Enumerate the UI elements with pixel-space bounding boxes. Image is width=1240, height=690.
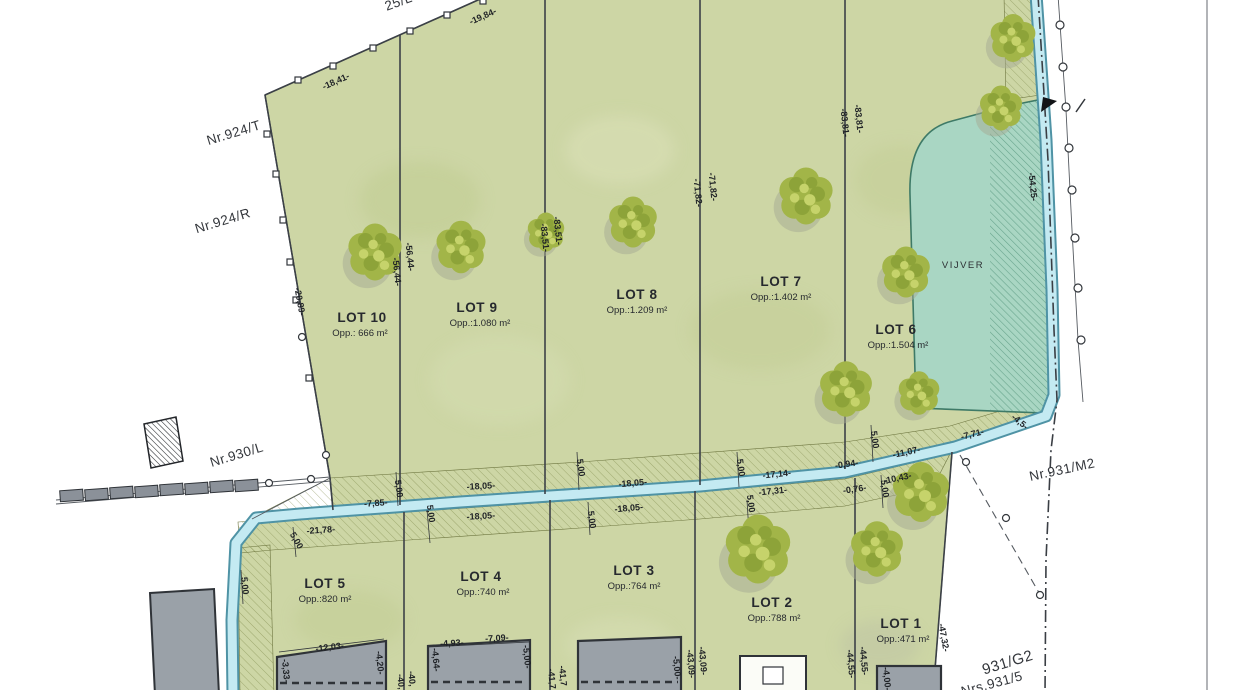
pond-label: VIJVER bbox=[942, 260, 984, 271]
pond: VIJVER bbox=[910, 99, 1052, 413]
dim-333: -3,33- bbox=[280, 659, 292, 683]
lot-4-name: LOT 4 bbox=[460, 569, 501, 584]
dim-493: -4,93- bbox=[440, 637, 464, 648]
dim-1805-a: -18,05- bbox=[466, 480, 495, 491]
dim-4732: -47,32- bbox=[937, 623, 952, 653]
label-nr924r: Nr.924/R bbox=[193, 205, 252, 236]
dim-500-g: 5,00 bbox=[869, 430, 881, 449]
dim-500-h: 5,00 bbox=[879, 479, 891, 498]
dim-40x-b: -40, bbox=[406, 671, 417, 687]
dim-500-d: 5,00 bbox=[586, 510, 598, 529]
dim-1805-b: -18,05- bbox=[466, 510, 495, 521]
lot-6-area: Opp.:1.504 m² bbox=[868, 340, 929, 351]
label-top-partial: 25/L bbox=[383, 0, 415, 14]
lot-6-name: LOT 6 bbox=[875, 322, 916, 337]
lot-5-area: Opp.:820 m² bbox=[299, 594, 352, 605]
dim-785: -7,85- bbox=[364, 497, 388, 509]
site-plan-page: VIJVER bbox=[0, 0, 1240, 690]
neighbor-buildings bbox=[144, 417, 219, 690]
dim-417-b: -41,7 bbox=[557, 665, 569, 686]
label-nr924t: Nr.924/T bbox=[205, 117, 263, 148]
lot-3-area: Opp.:764 m² bbox=[608, 581, 661, 592]
lot-8-name: LOT 8 bbox=[616, 287, 657, 302]
lot-8-area: Opp.:1.209 m² bbox=[607, 305, 668, 316]
dim-500-i: 5,00 bbox=[239, 577, 250, 595]
dim-500-e: 5,00 bbox=[735, 458, 747, 477]
lot-10-area: Opp.: 666 m² bbox=[332, 328, 387, 339]
dim-500-f: 5,00 bbox=[745, 494, 757, 513]
dim-709: -7,09- bbox=[485, 632, 509, 643]
dim-400: -4,00- bbox=[881, 667, 893, 690]
dim-500b-b: -5,00- bbox=[671, 656, 683, 680]
dim-417-a: -41,7 bbox=[546, 668, 558, 689]
lot-4-area: Opp.:740 m² bbox=[457, 587, 510, 598]
dim-500-c: 5,00 bbox=[575, 458, 587, 477]
dim-420: -4,20- bbox=[374, 651, 386, 675]
lot-9-area: Opp.:1.080 m² bbox=[450, 318, 511, 329]
lot-2-area: Opp.:788 m² bbox=[748, 613, 801, 624]
dim-40x-a: -40, bbox=[395, 674, 406, 690]
dim-500b-a: -5,00- bbox=[521, 645, 533, 669]
dim-2178: -21,78- bbox=[306, 524, 335, 536]
lot-7-name: LOT 7 bbox=[760, 274, 801, 289]
dim-500-a: 5,00 bbox=[393, 479, 405, 498]
lot-3-name: LOT 3 bbox=[613, 563, 654, 578]
lot-1-name: LOT 1 bbox=[880, 616, 921, 631]
dim-500-b: 5,00 bbox=[425, 504, 437, 523]
lot-7-area: Opp.:1.402 m² bbox=[751, 292, 812, 303]
lot-10-name: LOT 10 bbox=[337, 310, 386, 325]
label-nr930l: Nr.930/L bbox=[208, 439, 265, 469]
site-plan-drawing: VIJVER bbox=[0, 0, 1240, 690]
lot-5-name: LOT 5 bbox=[304, 576, 345, 591]
lot-9-name: LOT 9 bbox=[456, 300, 497, 315]
label-nr931m2: Nr.931/M2 bbox=[1028, 455, 1096, 484]
dim-464: -4,64- bbox=[430, 648, 442, 672]
lot-1-area: Opp.:471 m² bbox=[877, 634, 930, 645]
lot-2-name: LOT 2 bbox=[751, 595, 792, 610]
